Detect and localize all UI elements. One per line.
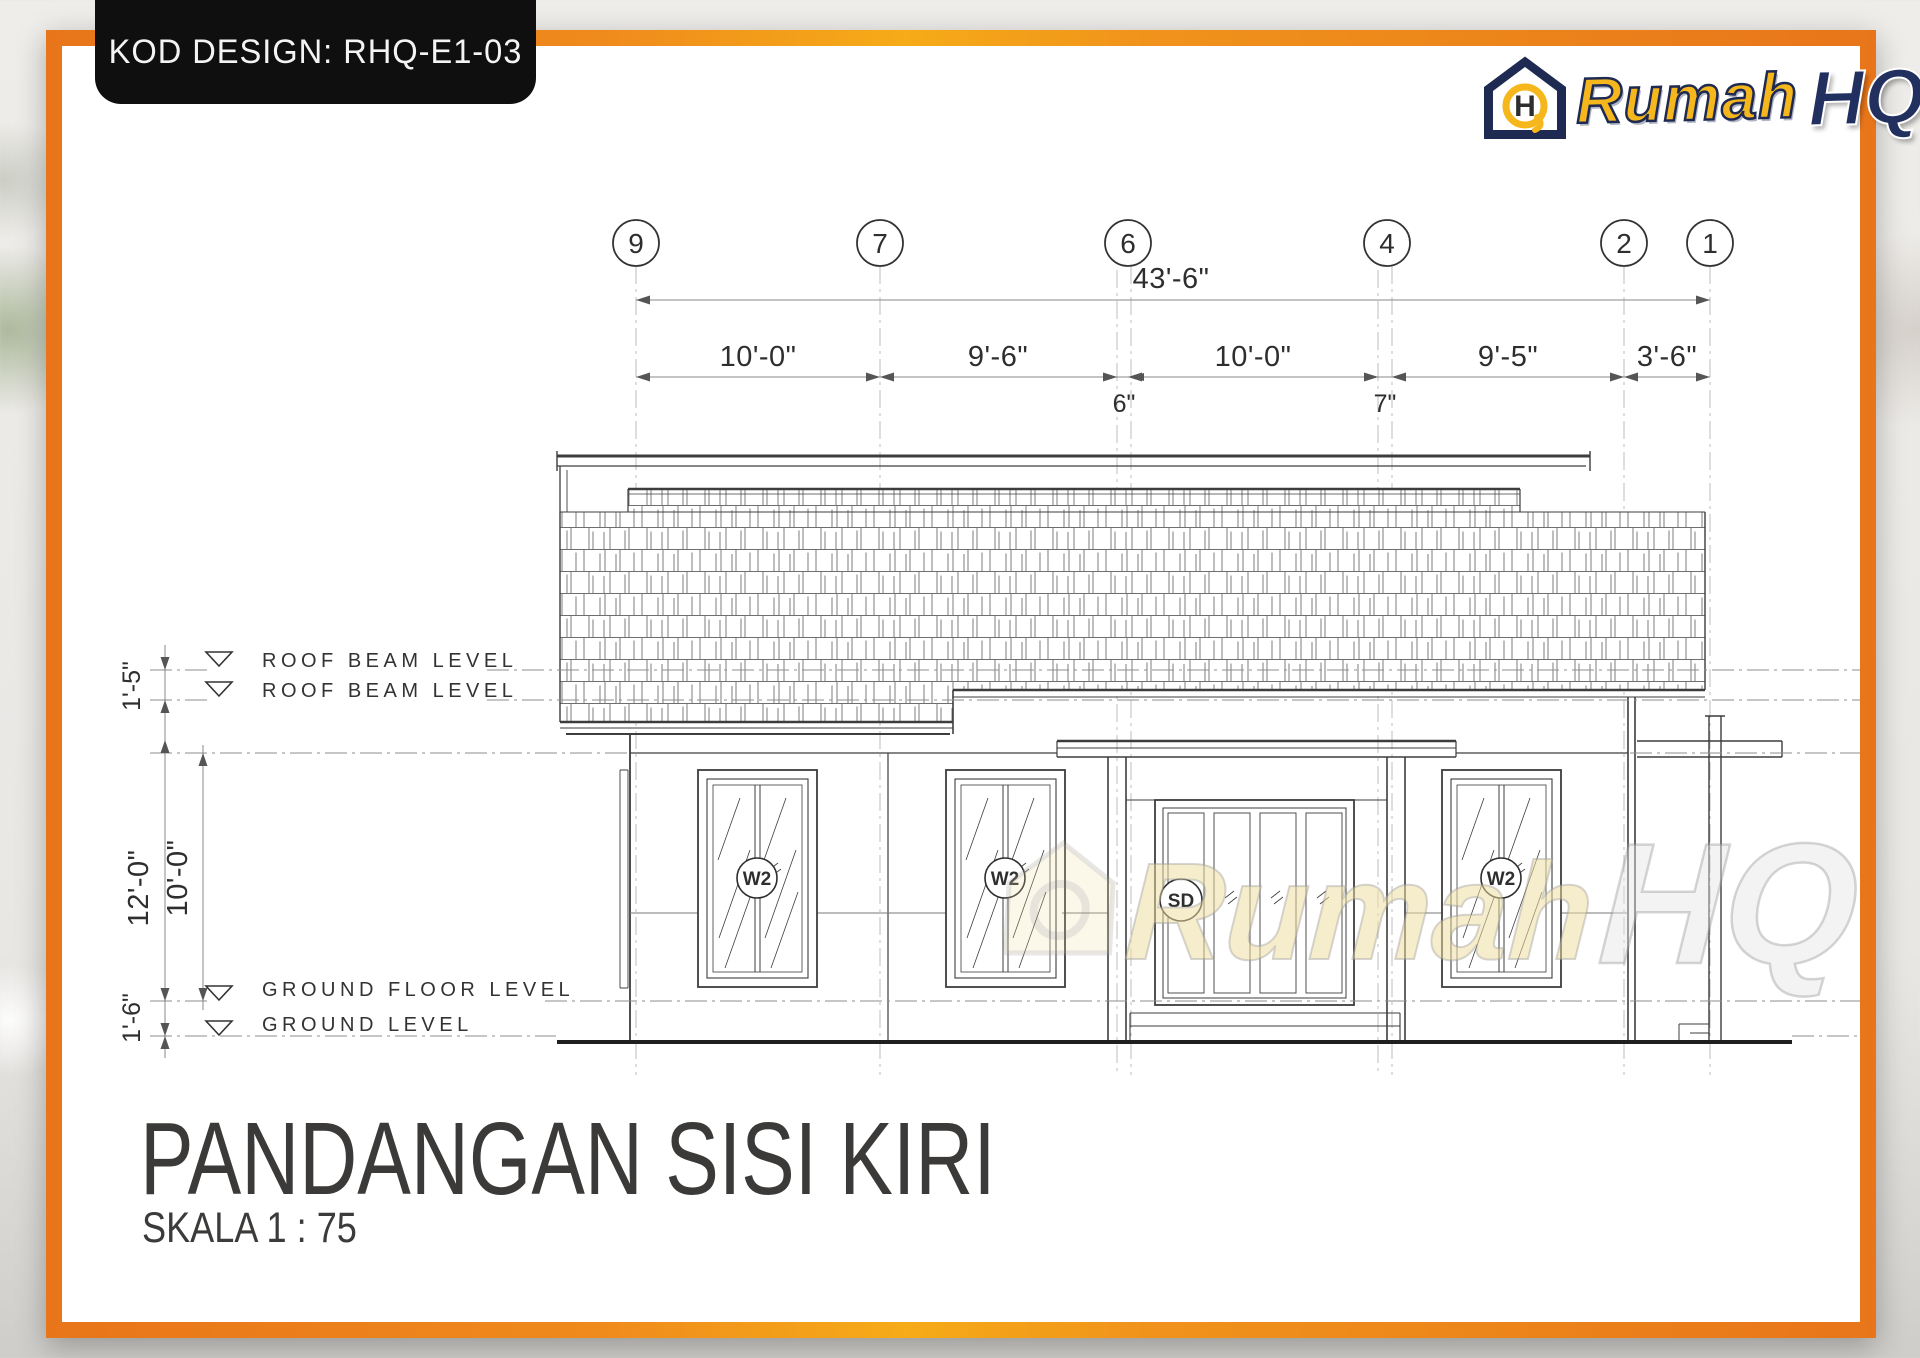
entrance-step (1130, 1013, 1400, 1042)
level-label-roof-beam-1: ROOF BEAM LEVEL (262, 650, 517, 672)
seg-dim-3: 10'-0" (1215, 341, 1292, 373)
seg-dim-2: 9'-6" (968, 341, 1028, 373)
tag-w2-2: W2 (991, 869, 1020, 890)
porch-column-right (1387, 757, 1405, 1042)
component-tags: W2 W2 W2 SD (737, 858, 1521, 921)
design-code-label: KOD DESIGN: RHQ-E1-03 (109, 33, 523, 72)
design-code-badge: KOD DESIGN: RHQ-E1-03 (95, 0, 536, 104)
end-post (1705, 716, 1725, 1042)
offset-dim-7in: 7" (1374, 390, 1397, 418)
seg-dim-5: 3'-6" (1637, 341, 1697, 373)
tag-sd: SD (1168, 891, 1194, 912)
tag-w2-3: W2 (1487, 869, 1516, 890)
svg-text:H: H (1514, 90, 1536, 123)
vdim-12-0: 12'-0" (123, 850, 155, 927)
roof (557, 451, 1705, 734)
grid-bubble-2: 2 (1616, 228, 1632, 259)
grid-bubble-4: 4 (1379, 228, 1395, 259)
level-markers (206, 652, 232, 1035)
grid-bubble-7: 7 (872, 228, 888, 259)
seg-dim-1: 10'-0" (720, 341, 797, 373)
view-scale: SKALA 1 : 75 (142, 1204, 357, 1253)
downpipe (620, 770, 628, 988)
seg-dim-4: 9'-5" (1478, 341, 1538, 373)
logo-text-hq: HQ (1807, 50, 1920, 144)
tag-w2-1: W2 (743, 869, 772, 890)
grid-bubble-6: 6 (1120, 228, 1136, 259)
offset-dim-6in: 6" (1113, 390, 1136, 418)
vdim-10-0: 10'-0" (162, 840, 194, 917)
rumahhq-logo: H Rumah HQ (1482, 52, 1920, 143)
total-dim-label: 43'-6" (1133, 263, 1210, 295)
grid-bubbles (613, 220, 1733, 266)
grid-bubble-1: 1 (1702, 228, 1718, 259)
right-pergola (1637, 716, 1782, 1042)
vdim-1-5: 1'-5" (118, 661, 146, 711)
logo-text-rumah: Rumah (1575, 58, 1799, 138)
total-dimension (636, 296, 1710, 305)
level-label-ground-floor: GROUND FLOOR LEVEL (262, 979, 574, 1001)
grid-bubble-9: 9 (628, 228, 644, 259)
vdim-1-6: 1'-6" (118, 993, 146, 1043)
post-bracket (1679, 1024, 1709, 1042)
rumahhq-house-icon: H (1482, 55, 1568, 141)
segment-dimensions (636, 373, 1710, 382)
level-label-ground: GROUND LEVEL (262, 1014, 473, 1036)
view-title: PANDANGAN SISI KIRI (140, 1100, 996, 1218)
level-label-roof-beam-2: ROOF BEAM LEVEL (262, 680, 517, 702)
